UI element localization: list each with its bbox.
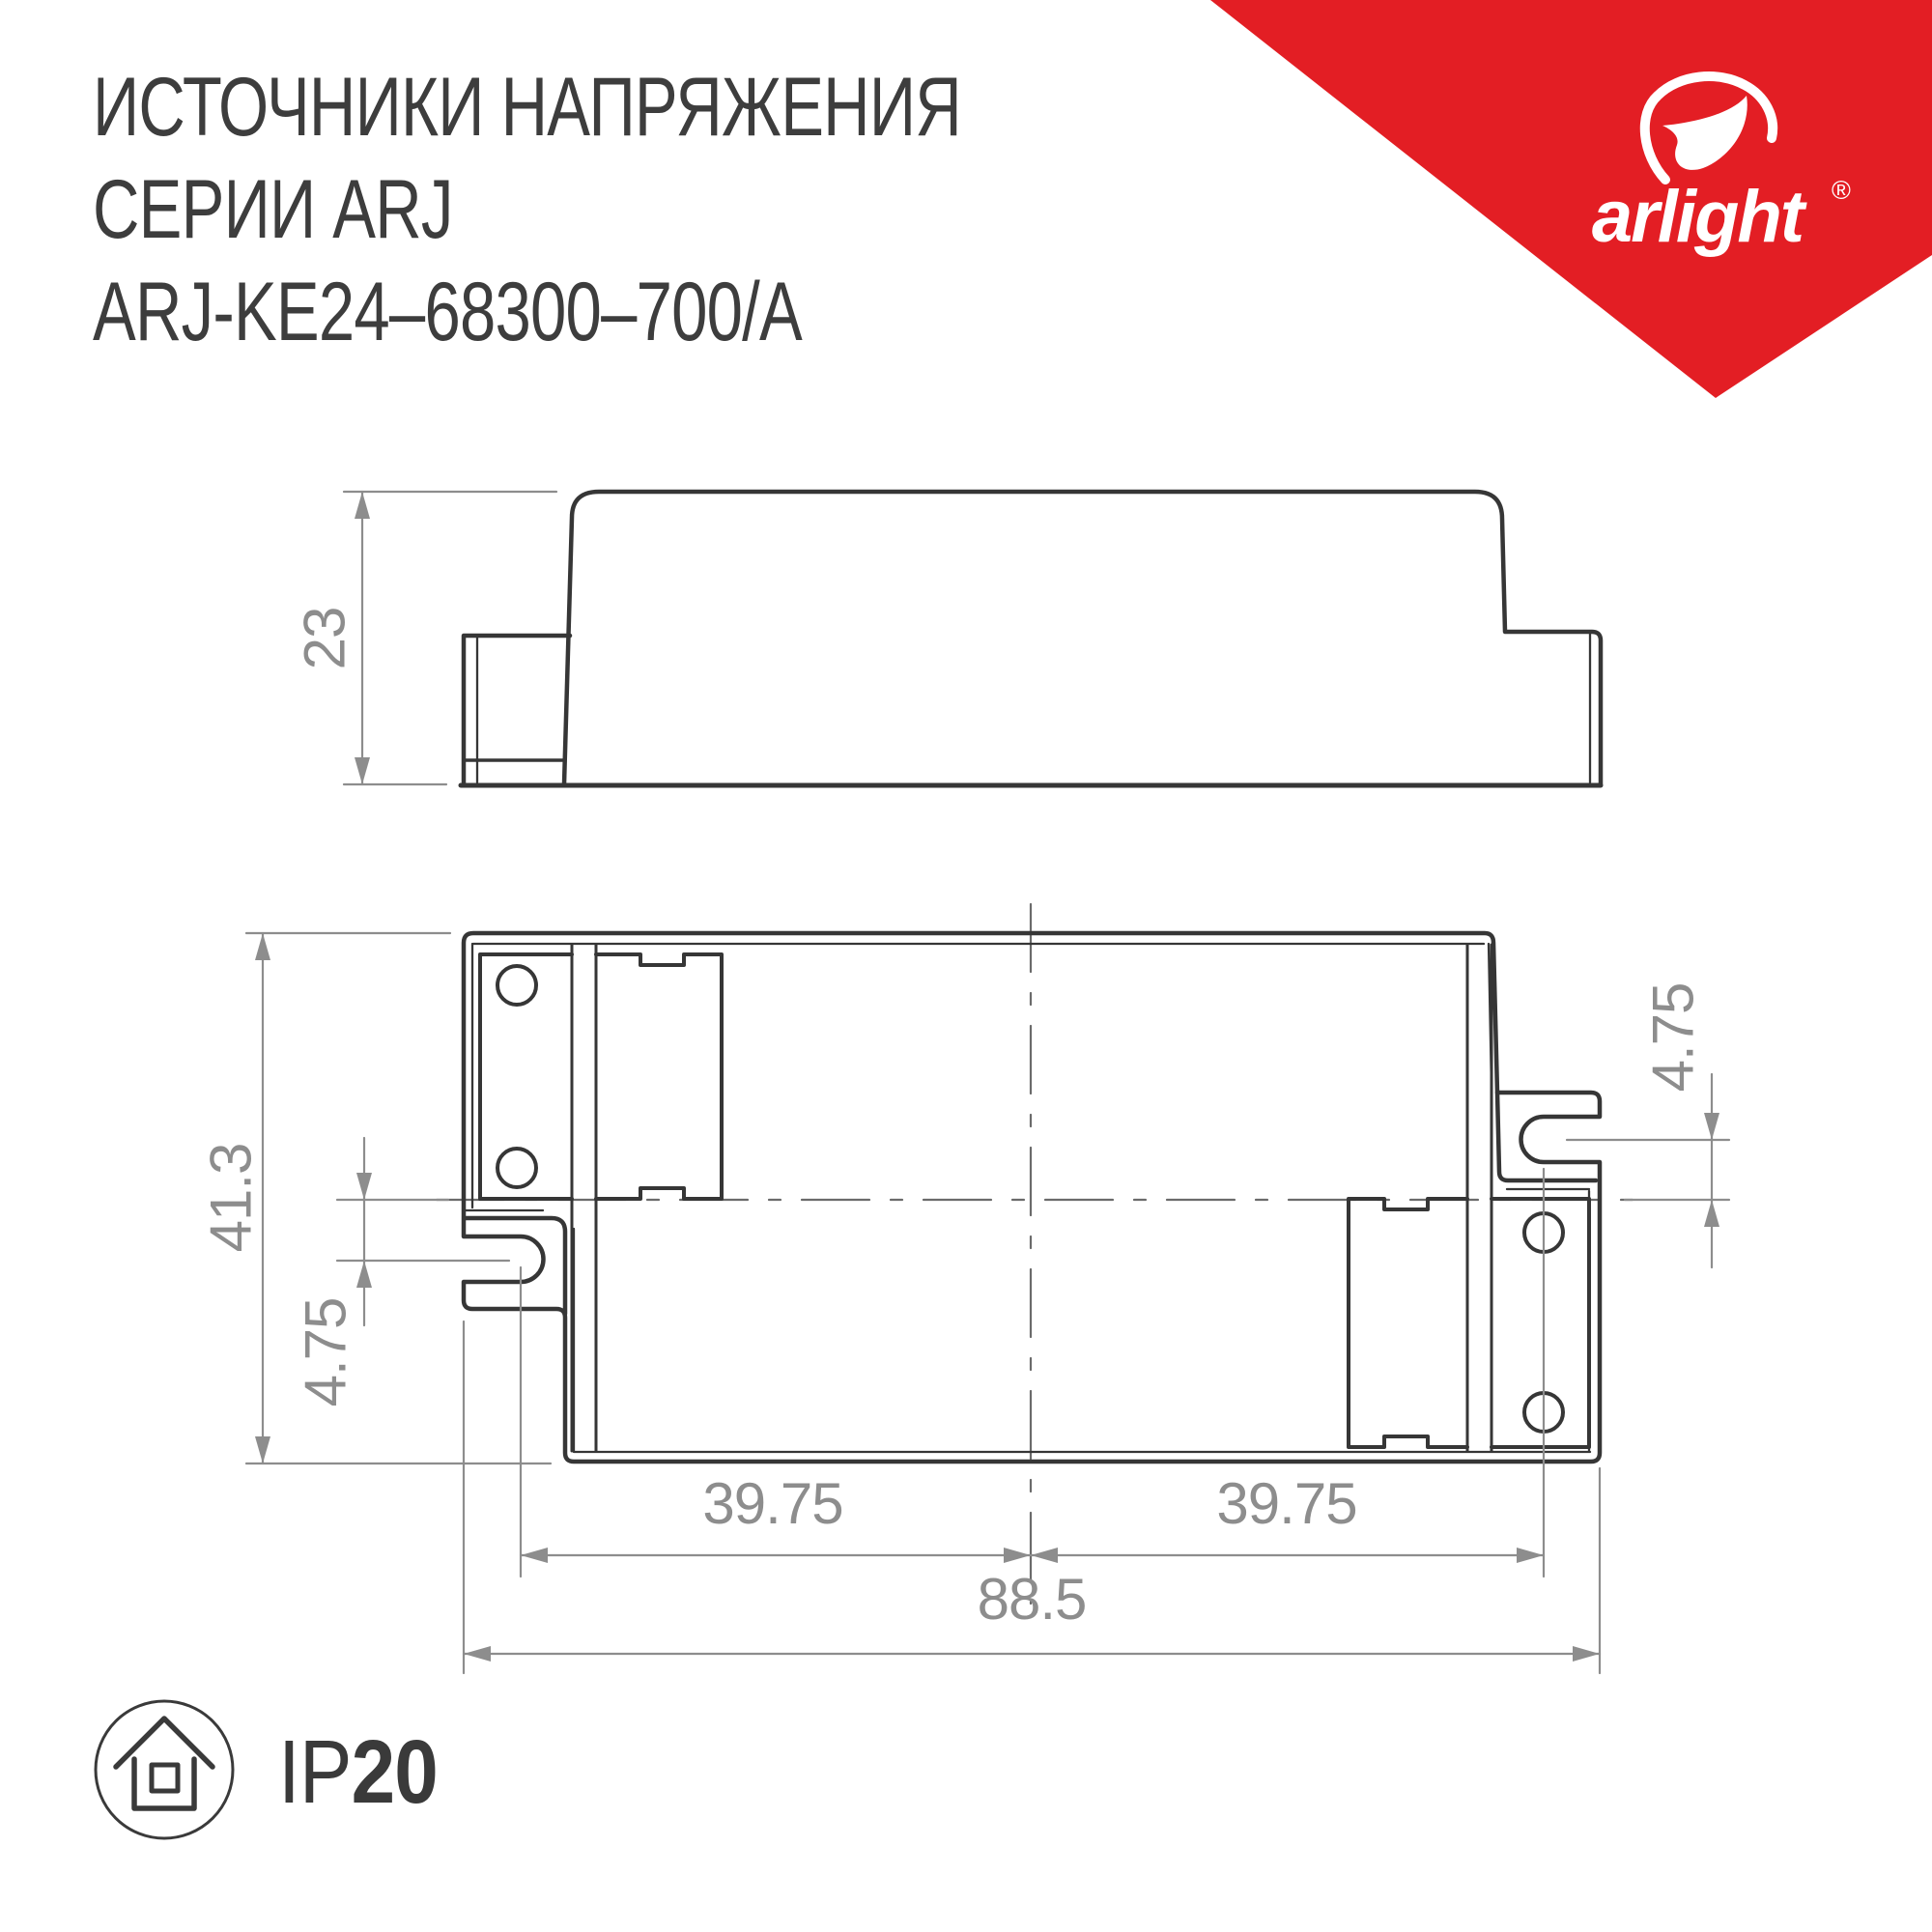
arlight-wordmark: arlight [1592,176,1807,258]
dim-side-height: 23 [293,492,557,784]
dim-slot-offset-right: 4.75 [1567,983,1729,1267]
dim-arrow [464,1646,491,1662]
connector-recess [596,954,722,1199]
datasheet-page: ИСТОЧНИКИ НАПРЯЖЕНИЯ СЕРИИ ARJ ARJ-KE24–… [0,0,1932,1932]
terminal-block-top-left [480,954,722,1199]
dim-arrow [255,1436,270,1463]
dim-label-slot-offset-right: 4.75 [1641,983,1706,1093]
side-view-body [461,492,1601,785]
dim-label-slot-offset-left: 4.75 [294,1298,358,1407]
dim-arrow [1573,1646,1600,1662]
dim-mount-pitch: 39.75 39.75 [521,1169,1544,1577]
ip-badge [96,1701,233,1838]
dim-label-body-width: 88.5 [978,1567,1087,1632]
bottom-view-drawing: 41.3 4.75 4.75 [199,904,1730,1673]
dim-arrow [255,933,270,960]
dim-arrow [1704,1113,1719,1140]
dim-label-mount-pitch-left: 39.75 [702,1471,842,1536]
dim-arrow [521,1548,548,1563]
connector-recess [1349,1199,1467,1447]
dim-arrow [1517,1548,1544,1563]
screw-hole [497,1149,536,1187]
ip-value: 20 [352,1721,438,1822]
side-view-drawing: 23 [293,492,1602,785]
dim-arrow [356,1173,372,1200]
dim-arrow [1031,1548,1058,1563]
technical-drawing: arlight ® 23 [0,0,1932,1932]
dim-label-mount-pitch-right: 39.75 [1216,1471,1356,1536]
triangle-shape [1210,0,1932,398]
dim-arrow [356,1261,372,1288]
ip-prefix: IP [278,1721,352,1822]
dim-label-side-height: 23 [293,608,357,670]
dim-body-width: 88.5 [464,1321,1600,1673]
house-icon [116,1719,213,1808]
dim-arrow [355,492,370,519]
dim-arrow [1704,1200,1719,1227]
ip-rating: IP20 [278,1727,438,1817]
dim-arrow [1004,1548,1031,1563]
dim-slot-offset-left: 4.75 [294,1138,510,1406]
dim-label-body-depth: 41.3 [199,1144,264,1253]
dim-arrow [355,757,370,784]
registered-trademark: ® [1832,176,1851,205]
brand-triangle: arlight ® [1210,0,1932,398]
centerlines [437,904,1647,1604]
screw-hole [497,966,536,1005]
